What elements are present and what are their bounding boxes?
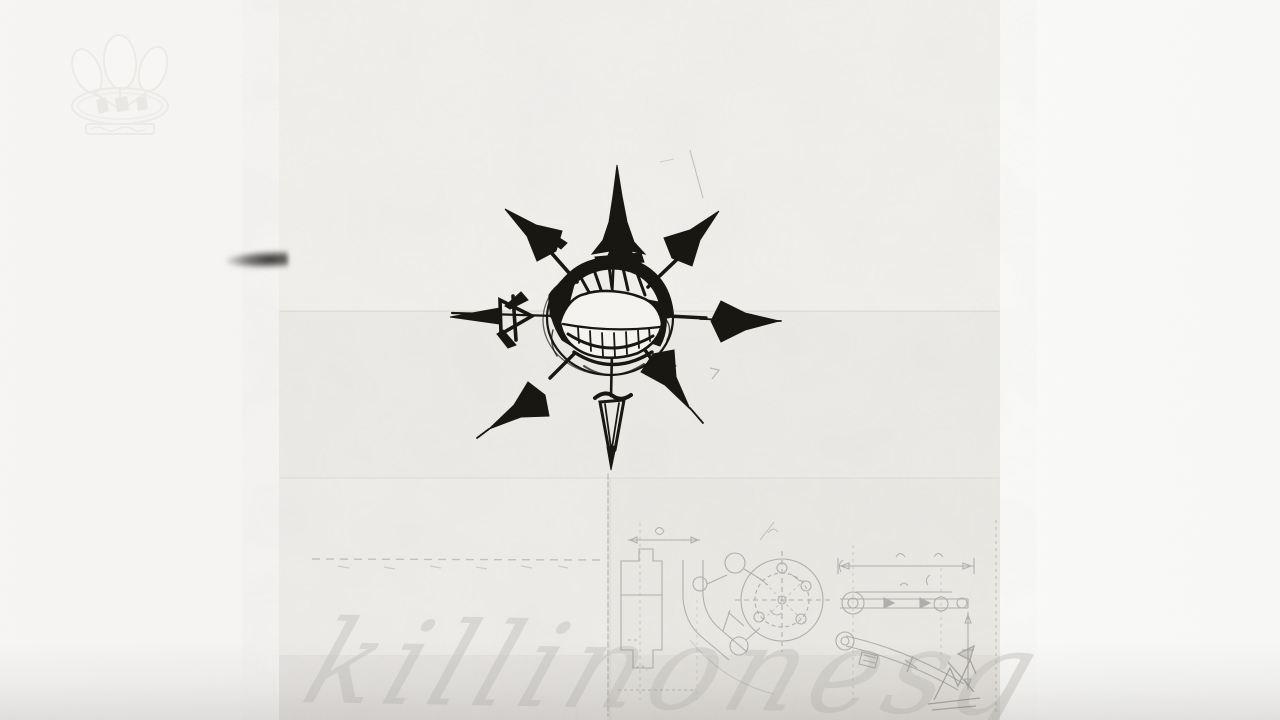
video-frame: killinonesg [0,0,1280,720]
artwork-scene: killinonesg [0,0,1280,720]
ink-smudge [226,250,289,270]
paper-grain-texture [0,0,1280,720]
